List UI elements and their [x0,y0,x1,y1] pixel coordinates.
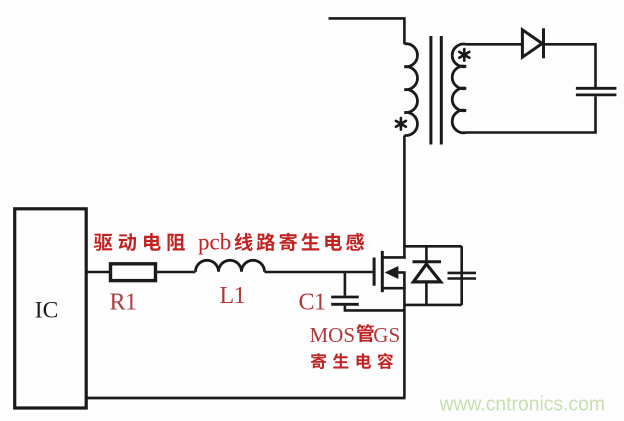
svg-text:GS: GS [373,323,400,347]
svg-text:R1: R1 [110,290,137,316]
svg-text:C1: C1 [299,290,326,316]
svg-text:pcb: pcb [198,229,231,254]
svg-text:IC: IC [35,298,59,324]
svg-text:L1: L1 [220,283,246,309]
svg-text:MOS: MOS [310,323,356,347]
svg-text:www.cntronics.com: www.cntronics.com [439,394,605,416]
